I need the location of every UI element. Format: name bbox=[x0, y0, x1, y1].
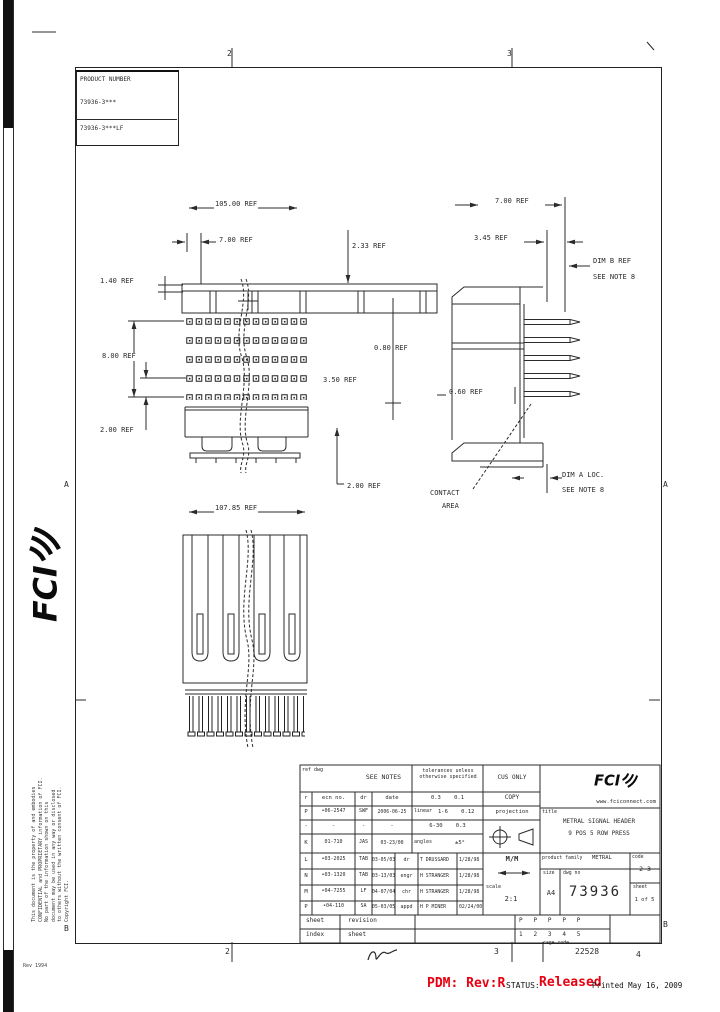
rev-row-date: 05-03/05 bbox=[372, 905, 395, 910]
rev-col-r: r bbox=[300, 795, 312, 801]
dim-side-offset: 3.45 REF bbox=[474, 235, 508, 243]
rev-row-ecn: 01-710 bbox=[312, 840, 355, 846]
contact-area-label-2: AREA bbox=[442, 503, 459, 511]
contact-area-label-1: CONTACT bbox=[430, 490, 460, 498]
sheet-index-label-1: sheet bbox=[306, 918, 324, 925]
rev-row-dr: TAB bbox=[355, 873, 372, 879]
approval-role: chr bbox=[396, 890, 417, 896]
sheet-index-revisions: P P P P P bbox=[519, 918, 580, 925]
margin-line-outer bbox=[3, 0, 4, 1012]
dwg-no-value: 73936 bbox=[562, 885, 628, 900]
dim-bottom-pitch: 2.00 REF bbox=[347, 483, 381, 491]
sheet-value: 1 of 5 bbox=[631, 897, 658, 903]
dim-col-pitch: 7.00 REF bbox=[219, 237, 253, 245]
approval-role: appd bbox=[396, 905, 417, 911]
approval-date: 02/24/00 bbox=[459, 905, 482, 910]
title-label: title bbox=[542, 810, 557, 816]
approval-date: 1/28/98 bbox=[459, 858, 479, 863]
rev-col-date: date bbox=[372, 795, 412, 801]
scale-value: 2:1 bbox=[496, 896, 526, 904]
rev-row-dr: - bbox=[355, 823, 372, 829]
dim-row-span: 8.00 REF bbox=[101, 353, 137, 361]
tolerance-header: tolerances unless otherwise specified bbox=[414, 769, 482, 781]
zone-right-b: B bbox=[663, 921, 668, 930]
zone-bottom-2: 2 bbox=[225, 948, 230, 957]
size-label: size bbox=[543, 871, 555, 876]
ref-label: ref dwg bbox=[302, 768, 323, 774]
form-note: Rev 1994 bbox=[23, 964, 47, 970]
dim-side-width: 7.00 REF bbox=[495, 198, 529, 206]
rev-row-ecn: •04-110 bbox=[312, 904, 355, 910]
dim-pin-width: 0.60 REF bbox=[449, 389, 483, 397]
zone-right-a: A bbox=[663, 481, 668, 490]
size-value: A4 bbox=[544, 890, 558, 898]
zone-top-2: 2 bbox=[227, 50, 232, 59]
margin-bar-bottom bbox=[3, 950, 13, 1012]
confidential-line: Copyright FCI. bbox=[64, 622, 71, 922]
product-number-row: 73936-3*** bbox=[80, 100, 116, 107]
dim-overall-length: 105.00 REF bbox=[214, 201, 258, 209]
rev-row-date: 03-23/00 bbox=[372, 841, 412, 846]
rev-row-date: - bbox=[372, 823, 412, 829]
rev-col-ecn: ecn no. bbox=[312, 795, 355, 801]
zone-left-b: B bbox=[64, 925, 69, 934]
tol-row: 1-6 0.12 bbox=[438, 809, 474, 815]
printed-date: Printed May 16, 2009 bbox=[592, 982, 682, 990]
pdm-revision: PDM: Rev:R bbox=[427, 977, 505, 991]
dim-b-note: SEE NOTE 8 bbox=[593, 274, 635, 282]
dim-right-b: 0.80 REF bbox=[374, 345, 408, 353]
cus-only: CUS ONLY bbox=[484, 775, 540, 782]
zone-bottom-3: 3 bbox=[494, 948, 499, 957]
website: www.fciconnect.com bbox=[546, 799, 656, 805]
rev-row-letter: L bbox=[300, 857, 312, 863]
rev-row-letter: - bbox=[300, 823, 312, 829]
tol-row: 0.3 0.1 bbox=[414, 795, 481, 801]
dwg-no-label: dwg no bbox=[563, 871, 580, 876]
rev-col-dr: dr bbox=[355, 795, 372, 801]
rev-row-ecn: •06-2547 bbox=[312, 809, 355, 815]
dim-b-label: DIM B REF bbox=[593, 258, 631, 266]
code-value: 2 3 bbox=[632, 866, 658, 873]
code-label: code bbox=[632, 855, 644, 860]
dim-a-label: DIM A LOC. bbox=[562, 472, 604, 480]
rev-row-dr: SA bbox=[355, 904, 372, 910]
handwritten-scribble bbox=[368, 950, 397, 960]
approval-role: dr bbox=[396, 858, 417, 864]
approval-date: 1/28/98 bbox=[459, 874, 479, 879]
approval-name: T DRUSSARD bbox=[420, 858, 449, 863]
zone-left-a: A bbox=[64, 481, 69, 490]
rev-row-letter: K bbox=[300, 840, 312, 846]
projection-label: projection bbox=[484, 809, 540, 815]
fci-logo-titleblock: FCI bbox=[594, 767, 638, 797]
rev-row-dr: SWF bbox=[355, 809, 372, 815]
zone-bottom-4: 4 bbox=[636, 951, 641, 960]
sheet-label: sheet bbox=[633, 885, 647, 890]
copy-label: COPY bbox=[484, 795, 540, 802]
divider bbox=[76, 119, 177, 120]
rev-row-ecn: •03-2025 bbox=[312, 857, 355, 863]
tol-angles-value: ±5° bbox=[438, 840, 482, 846]
scale-label: scale bbox=[486, 885, 501, 891]
units-mm: M/M bbox=[486, 856, 538, 864]
fci-logo-text-left: FCI bbox=[28, 565, 64, 622]
cage-code-label: cage code bbox=[543, 941, 569, 946]
confidential-notice: This document is the property of and emb… bbox=[31, 622, 70, 922]
approval-name: H STRANGER bbox=[420, 874, 449, 879]
cage-code-value: 22528 bbox=[575, 948, 599, 957]
rev-row-dr: JAS bbox=[355, 840, 372, 846]
product-number-header: PRODUCT NUMBER bbox=[80, 77, 131, 84]
dim-right-a: 2.33 REF bbox=[352, 243, 386, 251]
engineering-drawing-page: { "document": { "logo_text": "FCI", "web… bbox=[0, 0, 720, 1012]
sheet-index-row-label-2: sheet bbox=[348, 932, 366, 939]
drawing-title-line2: 9 POS 5 ROW PRESS bbox=[540, 831, 658, 838]
approval-name: H P MINER bbox=[420, 905, 446, 910]
rev-row-letter: N bbox=[300, 873, 312, 879]
rev-row-date: 2006-06-25 bbox=[372, 810, 412, 815]
fci-logo-waves bbox=[623, 773, 638, 786]
tol-row: 6-30 0.3 bbox=[414, 823, 481, 829]
approval-date: 1/28/98 bbox=[459, 890, 479, 895]
sheet-index-label-2: index bbox=[306, 932, 324, 939]
approval-role: engr bbox=[396, 874, 417, 880]
rev-row-ecn: - bbox=[312, 823, 355, 829]
dim-a-note: SEE NOTE 8 bbox=[562, 487, 604, 495]
rev-row-dr: LF bbox=[355, 889, 372, 895]
status-label: STATUS: bbox=[506, 982, 540, 991]
margin-bar-top bbox=[3, 0, 13, 128]
fci-logo-text: FCI bbox=[594, 773, 621, 790]
sheet-index-sheets: 1 2 3 4 5 bbox=[519, 932, 580, 939]
zone-top-3: 3 bbox=[507, 50, 512, 59]
product-family-value: METRAL bbox=[592, 855, 612, 861]
tol-linear-label: linear bbox=[414, 809, 432, 815]
see-notes: SEE NOTES bbox=[355, 774, 412, 781]
sheet-index-row-label-1: revision bbox=[348, 918, 377, 925]
product-number-row: 73936-3***LF bbox=[80, 126, 123, 133]
dim-right-c: 3.50 REF bbox=[322, 377, 358, 385]
dim-row-pitch: 2.00 REF bbox=[99, 427, 135, 435]
dim-bottom-overall: 107.85 REF bbox=[214, 505, 258, 513]
rev-row-letter: M bbox=[300, 889, 312, 895]
margin-line-inner bbox=[13, 0, 14, 1012]
rev-row-ecn: •04-7255 bbox=[312, 889, 355, 895]
rev-row-date: 03-13/03 bbox=[372, 874, 395, 879]
rev-row-date: 04-07/04 bbox=[372, 890, 395, 895]
product-family-label: product family bbox=[542, 856, 582, 861]
dim-top-height: 1.40 REF bbox=[100, 278, 134, 286]
fci-logo-waves-left bbox=[30, 529, 59, 561]
tol-angles-label: angles bbox=[414, 840, 432, 846]
drawing-title-line1: METRAL SIGNAL HEADER bbox=[540, 819, 658, 826]
rev-row-dr: TAB bbox=[355, 857, 372, 863]
rev-row-letter: P bbox=[300, 904, 312, 910]
fci-logo-left: FCI bbox=[18, 527, 74, 622]
approval-name: H STRANGER bbox=[420, 890, 449, 895]
rev-row-letter: P bbox=[300, 809, 312, 815]
rev-row-date: 03-05/03 bbox=[372, 858, 395, 863]
rev-row-ecn: •03-1320 bbox=[312, 873, 355, 879]
